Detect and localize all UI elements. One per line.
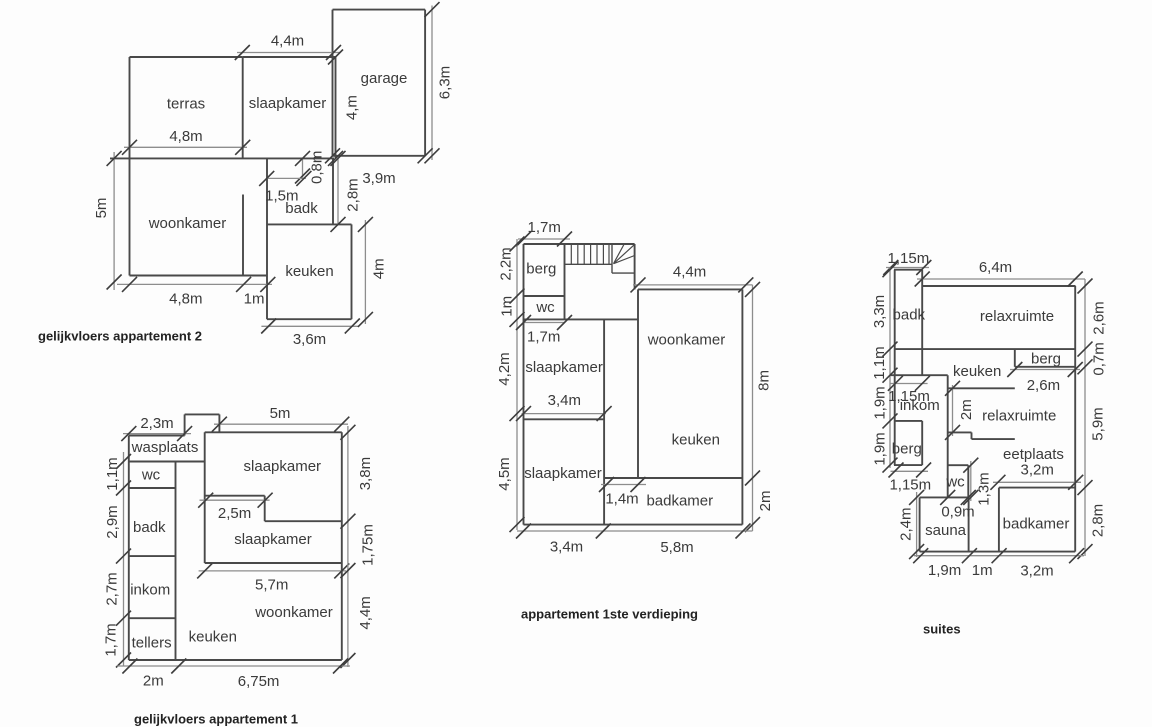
svg-text:2,3m: 2,3m: [140, 415, 173, 432]
svg-text:4,5m: 4,5m: [496, 457, 513, 490]
svg-text:3,2m: 3,2m: [1020, 562, 1053, 579]
svg-text:1,15m: 1,15m: [888, 388, 930, 405]
svg-text:appartement 1ste verdieping: appartement 1ste verdieping: [521, 607, 698, 622]
svg-text:5,9m: 5,9m: [1090, 407, 1107, 440]
svg-text:3,3m: 3,3m: [871, 295, 888, 328]
svg-text:wc: wc: [535, 299, 555, 316]
svg-text:4,4m: 4,4m: [271, 33, 304, 50]
svg-text:5,7m: 5,7m: [255, 577, 288, 594]
svg-text:wasplaats: wasplaats: [131, 439, 199, 456]
svg-text:1,15m: 1,15m: [889, 477, 931, 494]
svg-text:2,8m: 2,8m: [1089, 504, 1106, 537]
svg-text:slaapkamer: slaapkamer: [249, 95, 327, 112]
svg-text:6,3m: 6,3m: [437, 66, 454, 99]
svg-text:1m: 1m: [972, 562, 993, 579]
svg-text:terras: terras: [167, 96, 205, 113]
svg-text:2,6m: 2,6m: [1091, 301, 1108, 334]
svg-text:0,8m: 0,8m: [308, 151, 325, 184]
svg-text:woonkamer: woonkamer: [647, 332, 726, 349]
svg-text:badk: badk: [893, 306, 926, 323]
svg-text:4m: 4m: [370, 258, 387, 279]
svg-text:2,2m: 2,2m: [497, 247, 514, 280]
svg-text:slaapkamer: slaapkamer: [244, 458, 322, 475]
svg-text:wc: wc: [945, 474, 965, 491]
svg-text:berg: berg: [526, 261, 556, 278]
svg-text:sauna: sauna: [925, 522, 967, 539]
svg-text:1,9m: 1,9m: [928, 562, 961, 579]
svg-text:berg: berg: [1031, 350, 1061, 367]
svg-text:2,8m: 2,8m: [344, 178, 361, 211]
svg-text:keuken: keuken: [285, 263, 333, 280]
svg-text:tellers: tellers: [132, 635, 172, 652]
svg-text:8m: 8m: [755, 370, 772, 391]
svg-text:1,9m: 1,9m: [871, 432, 888, 465]
svg-text:2m: 2m: [757, 490, 774, 511]
svg-text:2,4m: 2,4m: [898, 508, 915, 541]
svg-text:keuken: keuken: [953, 363, 1001, 380]
svg-text:suites: suites: [923, 622, 961, 637]
svg-text:2,7m: 2,7m: [104, 572, 121, 605]
svg-text:1,7m: 1,7m: [527, 329, 560, 346]
svg-text:gelijkvloers appartement 2: gelijkvloers appartement 2: [38, 329, 202, 344]
svg-text:4,4m: 4,4m: [357, 596, 374, 629]
svg-text:garage: garage: [361, 70, 408, 87]
svg-text:3,9m: 3,9m: [362, 170, 395, 187]
svg-text:1,4m: 1,4m: [605, 490, 638, 507]
svg-text:keuken: keuken: [189, 629, 237, 646]
svg-text:1m: 1m: [499, 296, 516, 317]
svg-text:badkamer: badkamer: [1003, 516, 1070, 533]
svg-text:1,7m: 1,7m: [528, 219, 561, 236]
svg-text:slaapkamer: slaapkamer: [524, 465, 602, 482]
svg-text:4,2m: 4,2m: [496, 352, 513, 385]
svg-text:4,4m: 4,4m: [673, 264, 706, 281]
svg-text:1,1m: 1,1m: [871, 346, 888, 379]
svg-text:4,8m: 4,8m: [169, 291, 202, 308]
svg-text:badkamer: badkamer: [646, 492, 713, 509]
svg-text:badk: badk: [133, 519, 166, 536]
svg-text:1,15m: 1,15m: [888, 250, 930, 267]
svg-text:inkom: inkom: [130, 582, 170, 599]
svg-text:berg: berg: [892, 440, 922, 457]
svg-text:keuken: keuken: [672, 432, 720, 449]
svg-text:5m: 5m: [270, 405, 291, 422]
svg-text:woonkamer: woonkamer: [254, 604, 333, 621]
svg-text:2m: 2m: [958, 399, 975, 420]
svg-text:1,3m: 1,3m: [976, 472, 993, 505]
svg-text:2,9m: 2,9m: [104, 505, 121, 538]
svg-text:6,4m: 6,4m: [979, 259, 1012, 276]
svg-text:3,8m: 3,8m: [357, 457, 374, 490]
svg-text:1,9m: 1,9m: [871, 386, 888, 419]
svg-text:eetplaats: eetplaats: [1003, 446, 1064, 463]
svg-text:relaxruimte: relaxruimte: [980, 308, 1054, 325]
svg-text:2m: 2m: [143, 673, 164, 690]
svg-text:1,75m: 1,75m: [360, 524, 377, 566]
svg-text:relaxruimte: relaxruimte: [982, 408, 1056, 425]
svg-text:3,4m: 3,4m: [550, 539, 583, 556]
svg-text:3,4m: 3,4m: [548, 392, 581, 409]
svg-text:5m: 5m: [93, 198, 110, 219]
svg-text:3,6m: 3,6m: [293, 331, 326, 348]
svg-text:5,8m: 5,8m: [660, 539, 693, 556]
svg-text:2,5m: 2,5m: [218, 505, 251, 522]
svg-text:1m: 1m: [244, 291, 265, 308]
svg-text:6,75m: 6,75m: [238, 673, 280, 690]
svg-text:2,6m: 2,6m: [1027, 377, 1060, 394]
svg-text:woonkamer: woonkamer: [148, 215, 227, 232]
svg-text:1,1m: 1,1m: [104, 457, 121, 490]
svg-text:gelijkvloers appartement 1: gelijkvloers appartement 1: [134, 712, 298, 727]
svg-text:slaapkamer: slaapkamer: [234, 531, 312, 548]
svg-text:1,7m: 1,7m: [102, 623, 119, 656]
svg-text:4,m: 4,m: [343, 95, 360, 120]
svg-text:4,8m: 4,8m: [169, 128, 202, 145]
svg-text:slaapkamer: slaapkamer: [525, 359, 603, 376]
svg-text:0,7m: 0,7m: [1091, 342, 1108, 375]
svg-text:1,5m: 1,5m: [265, 188, 298, 205]
svg-text:0,9m: 0,9m: [941, 503, 974, 520]
svg-text:wc: wc: [141, 467, 161, 484]
svg-text:3,2m: 3,2m: [1021, 462, 1054, 479]
